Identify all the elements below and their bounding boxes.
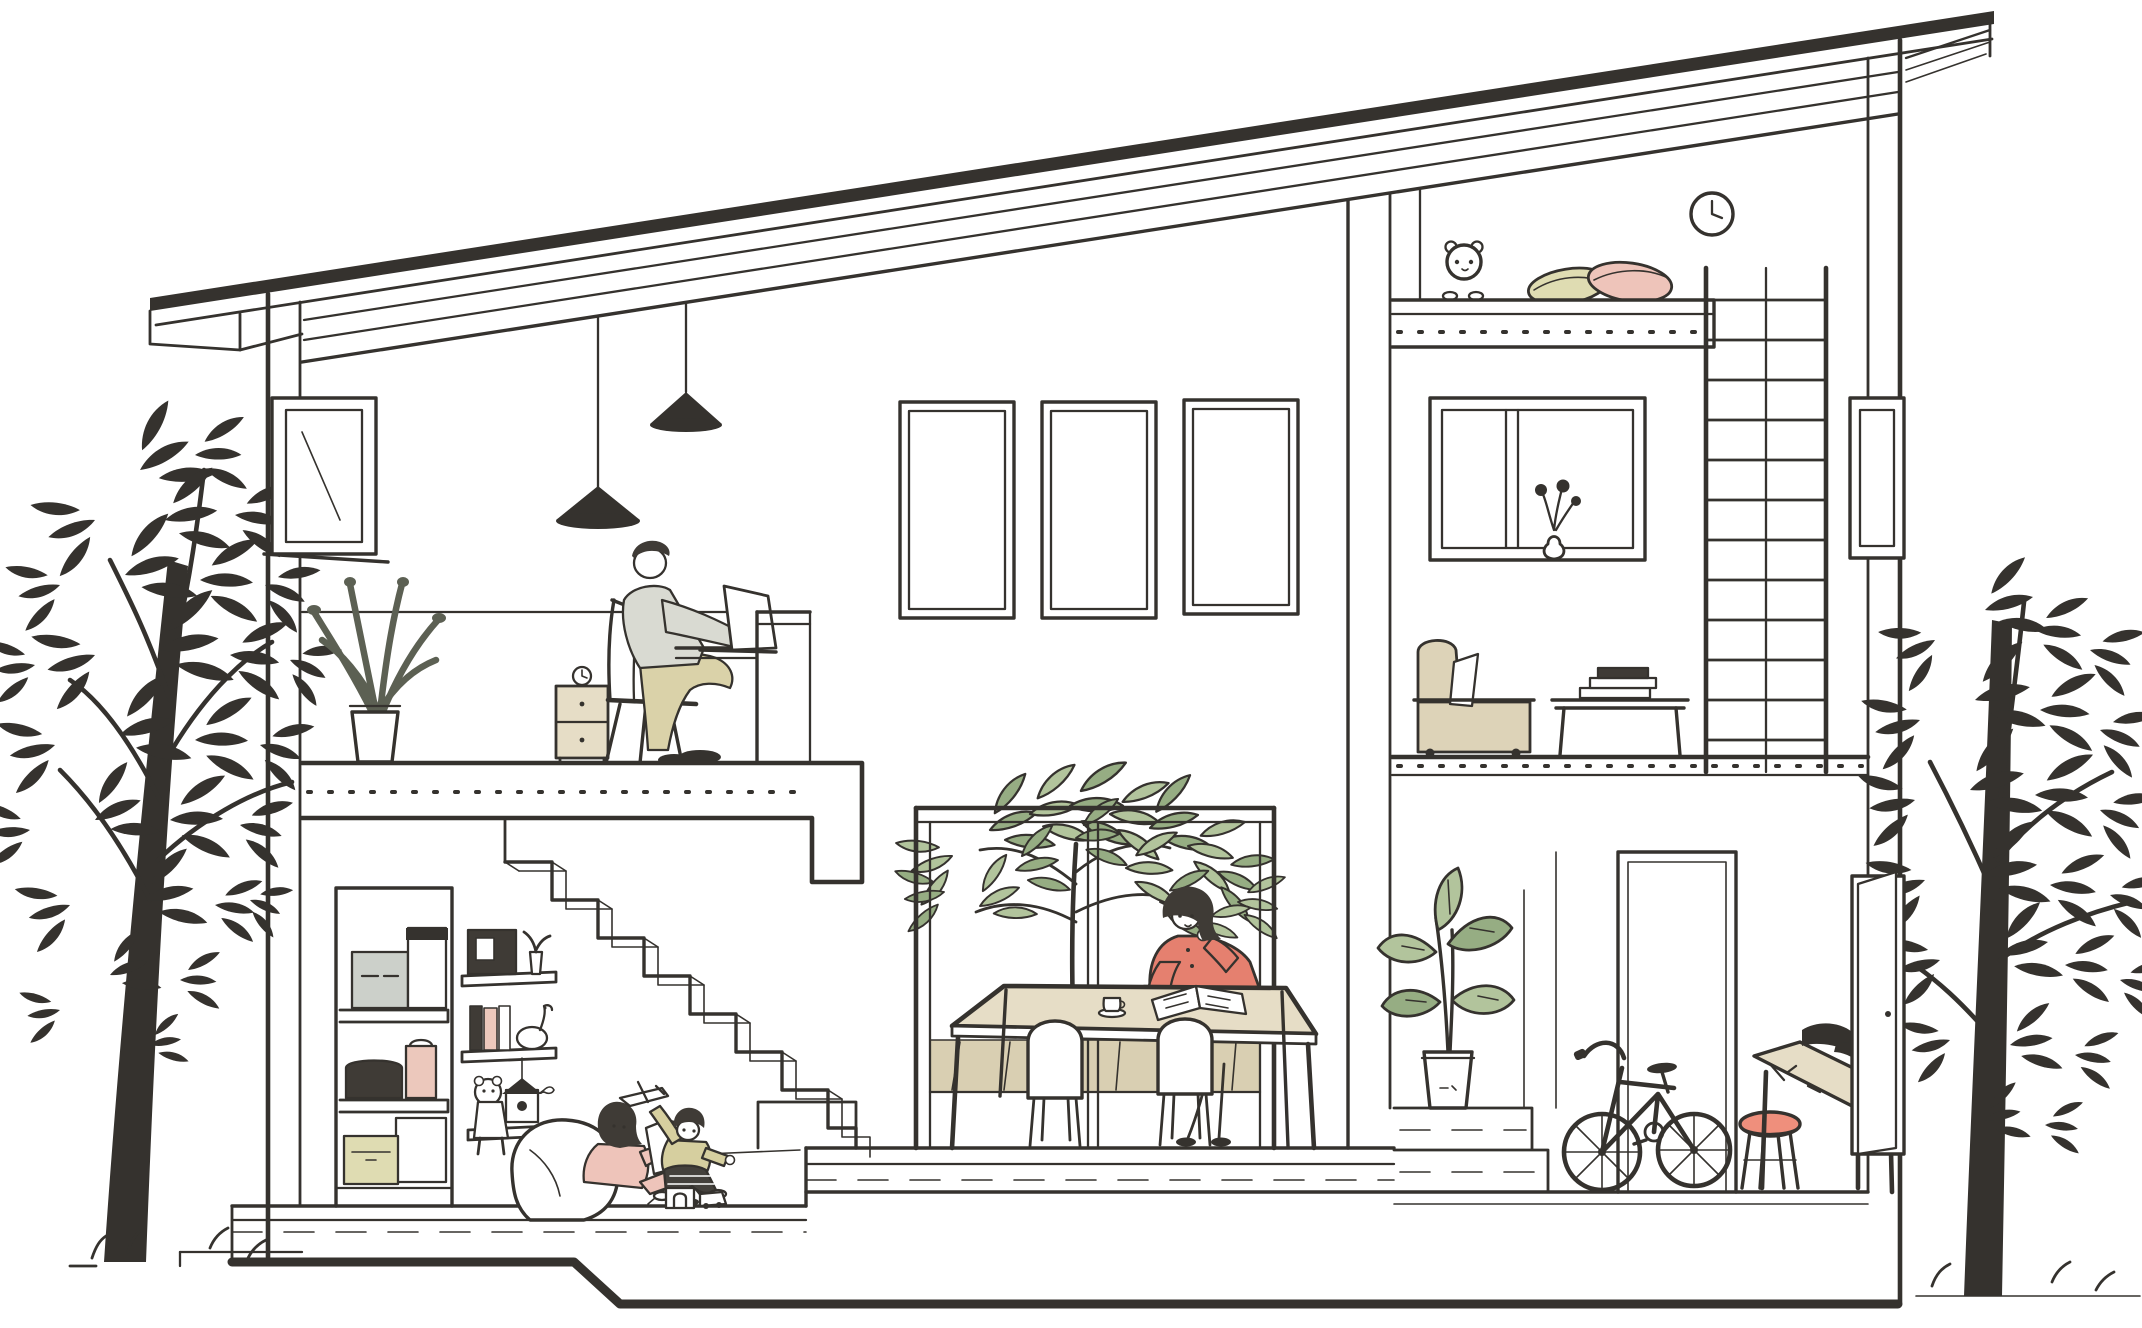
teddy-bear [1443, 242, 1483, 301]
wall-shelves [462, 930, 556, 1154]
stool [1740, 1112, 1800, 1188]
front-door [1852, 872, 1904, 1154]
right-section [1348, 190, 1904, 1192]
foundation [232, 1262, 1898, 1304]
entryway [1378, 852, 1904, 1192]
entry-plant [1378, 868, 1514, 1108]
climbing-bear [474, 1077, 508, 1155]
office-plant [307, 577, 446, 762]
coffee-table [1552, 668, 1688, 755]
illustration [0, 0, 2142, 1328]
sitting-room [1392, 398, 1868, 775]
ladder [1706, 268, 1826, 772]
left-eave [150, 311, 302, 350]
book-stack [1580, 668, 1656, 698]
wall-windows [900, 400, 1298, 618]
wall-clock [1691, 193, 1733, 235]
sofa [1414, 640, 1534, 757]
office-window [264, 398, 388, 562]
bicycle [1564, 1043, 1730, 1190]
doorway [1618, 852, 1736, 1192]
loft-bedroom [1392, 193, 1733, 347]
loft-slab [1392, 300, 1714, 347]
entry-steps [1394, 1108, 1548, 1192]
sitting-room-window [1430, 398, 1645, 560]
right-grass [1916, 1262, 2140, 1296]
birdhouse [502, 1058, 554, 1122]
scene-root [0, 11, 2142, 1304]
goose-figurine [517, 1005, 552, 1049]
mezzanine-slab [302, 763, 862, 882]
books [470, 1006, 510, 1050]
side-table [556, 667, 608, 763]
play-area [512, 1082, 735, 1220]
house-cross-section-svg [0, 0, 2142, 1328]
home-office [264, 304, 862, 882]
closet [336, 888, 452, 1206]
right-wall-window [1850, 398, 1904, 558]
floors [232, 1148, 1868, 1262]
pendant-lamps [556, 304, 722, 529]
toy-airplane [620, 1082, 668, 1106]
roof [150, 11, 1994, 362]
coffee-cup [1099, 998, 1125, 1017]
